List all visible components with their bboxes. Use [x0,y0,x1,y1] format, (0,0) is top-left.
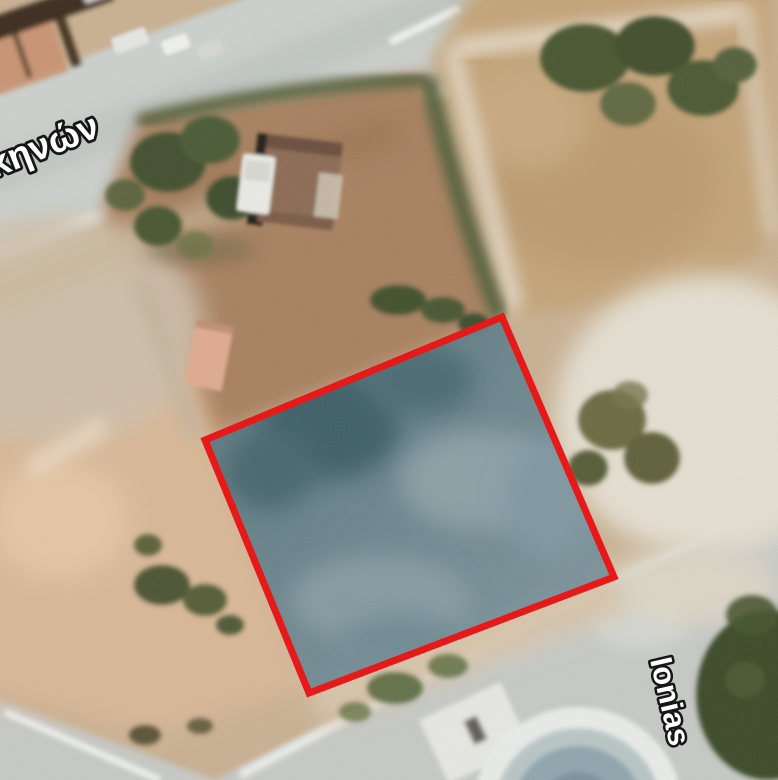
satellite-map: υκηνών Ionias [0,0,778,780]
satellite-map-canvas: υκηνών Ionias [0,0,778,780]
